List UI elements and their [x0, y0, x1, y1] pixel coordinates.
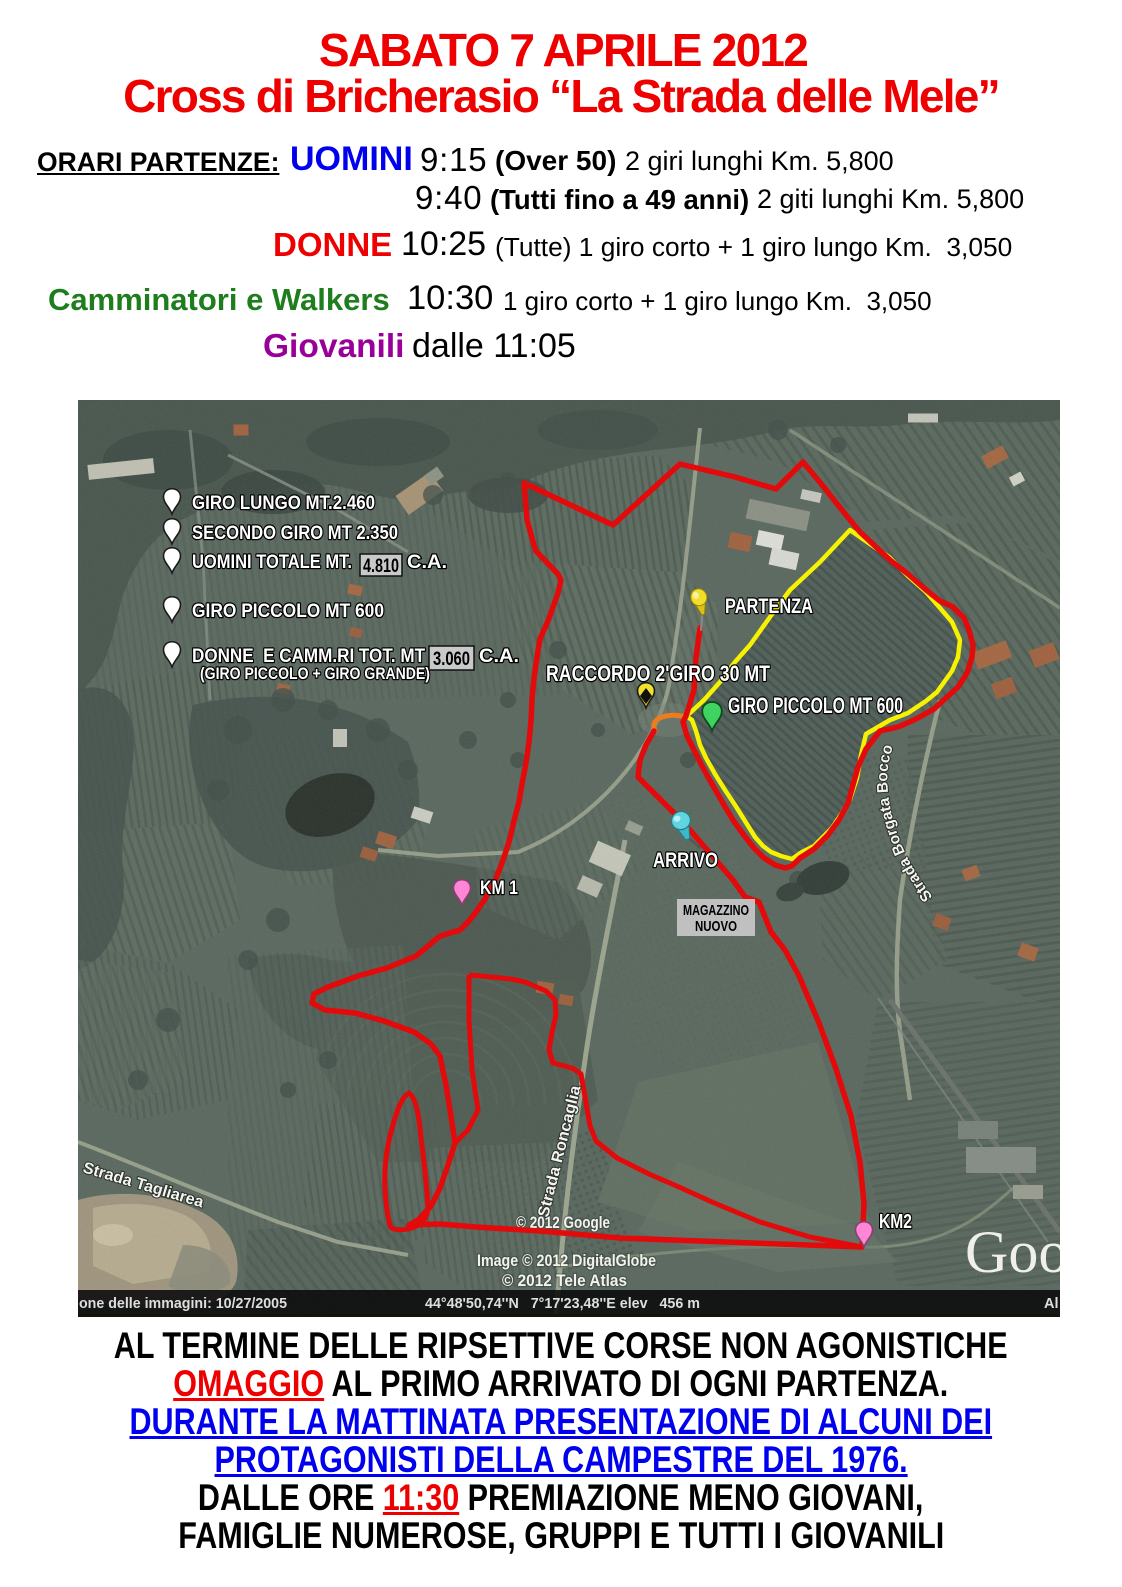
- svg-text:4.810: 4.810: [363, 556, 399, 577]
- svg-text:MAGAZZINO: MAGAZZINO: [683, 902, 749, 919]
- svg-text:© 2012 Tele Atlas: © 2012 Tele Atlas: [502, 1272, 627, 1290]
- svg-text:KM 1: KM 1: [480, 878, 518, 899]
- svg-text:DONNE E CAMM.RI TOT. MT: DONNE E CAMM.RI TOT. MT: [192, 645, 425, 667]
- svg-text:RACCORDO 2'GIRO 30 MT: RACCORDO 2'GIRO 30 MT: [546, 661, 770, 686]
- svg-text:PARTENZA: PARTENZA: [725, 595, 813, 618]
- svg-text:(GIRO PICCOLO + GIRO GRANDE): (GIRO PICCOLO + GIRO GRANDE): [200, 665, 430, 683]
- svg-text:Google: Google: [965, 1219, 1060, 1285]
- svg-text:ARRIVO: ARRIVO: [653, 849, 718, 872]
- svg-text:UOMINI TOTALE MT.: UOMINI TOTALE MT.: [192, 551, 352, 573]
- svg-text:C.A.: C.A.: [407, 551, 447, 573]
- svg-text:GIRO LUNGO MT.2.460: GIRO LUNGO MT.2.460: [192, 492, 375, 514]
- svg-text:3.060: 3.060: [433, 649, 470, 670]
- svg-text:GIRO PICCOLO MT 600: GIRO PICCOLO MT 600: [728, 693, 903, 718]
- svg-text:C.A.: C.A.: [479, 645, 519, 667]
- svg-text:ione delle immagini: 10/27/200: ione delle immagini: 10/27/2005: [78, 1296, 287, 1312]
- svg-text:GIRO PICCOLO MT 600: GIRO PICCOLO MT 600: [192, 600, 384, 622]
- svg-text:KM2: KM2: [879, 1211, 912, 1233]
- svg-text:Image © 2012 DigitalGlobe: Image © 2012 DigitalGlobe: [477, 1252, 656, 1270]
- svg-text:SECONDO GIRO MT 2.350: SECONDO GIRO MT 2.350: [192, 522, 398, 544]
- svg-text:NUOVO: NUOVO: [695, 918, 737, 935]
- svg-text:Al: Al: [1044, 1296, 1059, 1312]
- svg-text:44°48'50,74''N 7°17'23,48''E: 44°48'50,74''N 7°17'23,48''E elev 456 m: [425, 1296, 700, 1312]
